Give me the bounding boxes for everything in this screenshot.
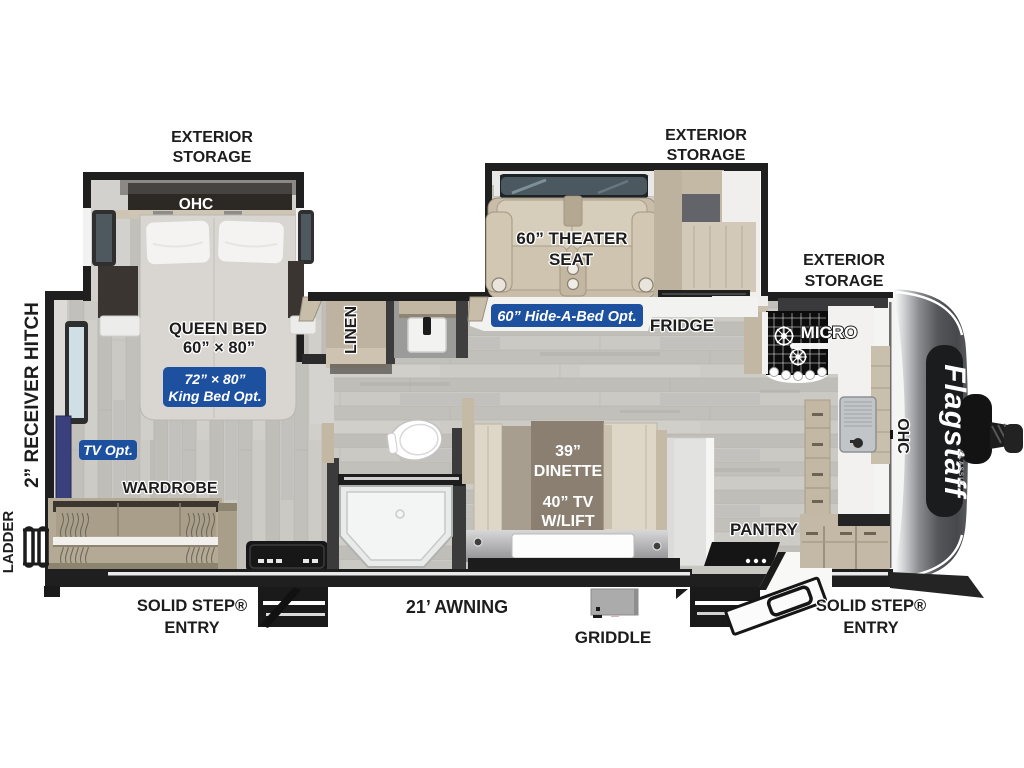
- svg-text:GRIDDLE: GRIDDLE: [575, 628, 652, 647]
- svg-text:DINETTE: DINETTE: [534, 463, 603, 480]
- svg-text:21’ AWNING: 21’ AWNING: [406, 597, 508, 617]
- svg-text:PANTRY: PANTRY: [730, 520, 799, 539]
- svg-text:39”: 39”: [555, 443, 581, 460]
- svg-text:MICRO: MICRO: [801, 323, 858, 342]
- svg-text:Flagstaff: Flagstaff: [938, 364, 971, 499]
- svg-text:King Bed Opt.: King Bed Opt.: [168, 388, 261, 404]
- svg-text:STORAGE: STORAGE: [805, 273, 884, 290]
- svg-text:LADDER: LADDER: [0, 511, 17, 574]
- svg-text:STORAGE: STORAGE: [173, 149, 252, 166]
- svg-text:TV Opt.: TV Opt.: [83, 442, 133, 458]
- svg-text:W/LIFT: W/LIFT: [541, 513, 595, 530]
- svg-text:72” × 80”: 72” × 80”: [184, 371, 245, 387]
- svg-text:SOLID STEP®: SOLID STEP®: [137, 597, 247, 615]
- svg-text:40” TV: 40” TV: [543, 494, 594, 511]
- svg-text:STORAGE: STORAGE: [667, 147, 746, 164]
- svg-text:EXTERIOR: EXTERIOR: [171, 129, 253, 146]
- svg-text:SOLID STEP®: SOLID STEP®: [816, 597, 926, 615]
- svg-text:OHC: OHC: [179, 196, 213, 213]
- svg-text:CLASSIC: CLASSIC: [957, 450, 964, 486]
- svg-text:EXTERIOR: EXTERIOR: [665, 127, 747, 144]
- svg-text:2” RECEIVER HITCH: 2” RECEIVER HITCH: [22, 302, 43, 488]
- svg-text:SEAT: SEAT: [549, 250, 594, 269]
- svg-text:60” × 80”: 60” × 80”: [183, 339, 255, 357]
- svg-text:ENTRY: ENTRY: [164, 619, 219, 637]
- svg-text:FRIDGE: FRIDGE: [650, 316, 714, 335]
- svg-text:60” THEATER: 60” THEATER: [516, 229, 627, 248]
- svg-text:LINEN: LINEN: [343, 306, 360, 354]
- svg-text:WARDROBE: WARDROBE: [122, 480, 217, 497]
- svg-text:EXTERIOR: EXTERIOR: [803, 252, 885, 269]
- svg-text:ENTRY: ENTRY: [843, 619, 898, 637]
- svg-text:60” Hide-A-Bed Opt.: 60” Hide-A-Bed Opt.: [497, 309, 636, 325]
- svg-text:QUEEN BED: QUEEN BED: [169, 320, 267, 338]
- svg-text:OHC: OHC: [894, 418, 911, 454]
